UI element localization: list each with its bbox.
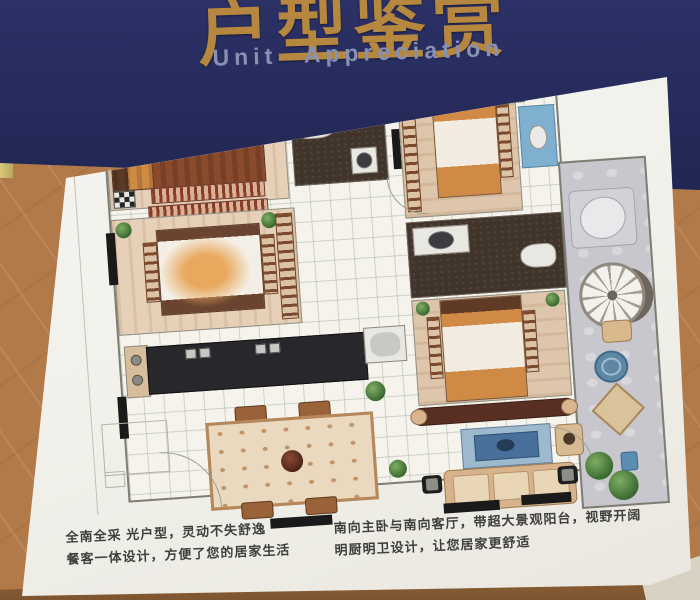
basin-bowl: [356, 152, 373, 169]
nightstand: [113, 190, 136, 208]
sofa-cushion: [453, 473, 491, 503]
burner-icon: [132, 374, 144, 386]
stove-knob-icon: [255, 344, 267, 355]
description-left: 全南全采 光户型，灵动不失舒逸 餐客一体设计，方便了您的居家生活: [65, 517, 291, 571]
parasol-hub: [607, 290, 618, 301]
wash-basin: [350, 146, 378, 174]
double-bed: [439, 295, 528, 402]
stove-knob-icon: [199, 348, 211, 359]
cabinet-end: [410, 409, 428, 426]
table-ring: [601, 357, 622, 376]
watering-can-icon: [620, 451, 638, 471]
balcony-seat: [601, 319, 632, 343]
side-table-top: [561, 469, 574, 482]
annex-outline: [101, 420, 170, 476]
sink-tub: [369, 331, 401, 357]
toilet: [520, 242, 558, 268]
double-bed: [156, 223, 266, 316]
basin-bowl: [427, 230, 454, 250]
dining-table: [205, 411, 379, 511]
vanity-counter: [412, 224, 470, 256]
dining-chair: [241, 501, 274, 520]
stove-knob-icon: [269, 343, 281, 354]
coffee-table: [460, 423, 553, 469]
stove-knob-icon: [185, 349, 197, 360]
kitchen-sink: [363, 325, 407, 364]
annex-outline: [104, 471, 125, 488]
centerpiece-icon: [280, 449, 303, 472]
photo-scene: 户型鉴赏 Unit Appreciation: [0, 0, 700, 600]
dining-chair: [305, 496, 338, 515]
burner-icon: [130, 354, 142, 366]
side-table: [421, 475, 442, 494]
side-table-top: [426, 478, 439, 491]
